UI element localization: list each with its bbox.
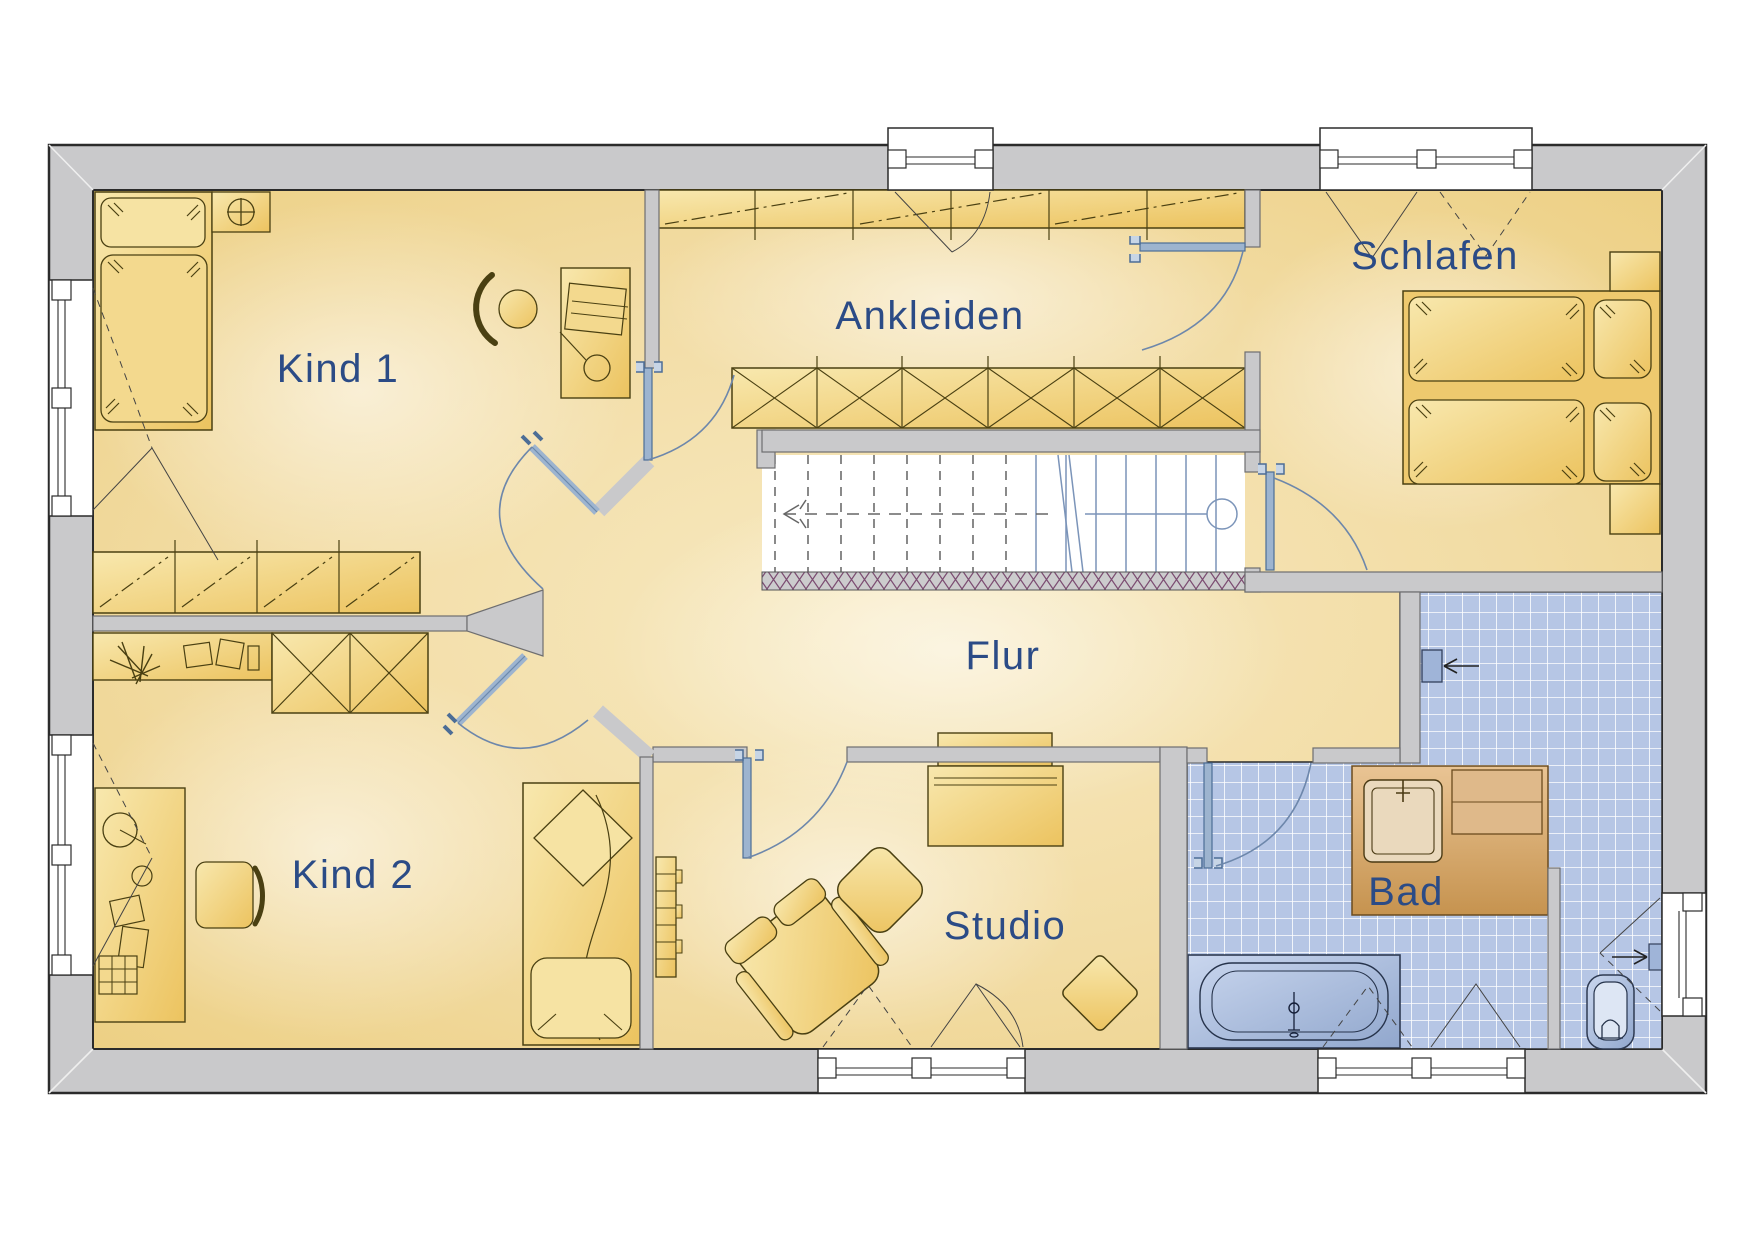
bathtub: [1188, 955, 1400, 1048]
bed-pillow: [1594, 403, 1651, 481]
desk-keyboard: [565, 283, 626, 335]
wall-flur-studio-left: [653, 747, 747, 762]
wall-kind2-studio: [640, 757, 653, 1049]
keyboard-kind2: [99, 956, 137, 994]
label-kind2: Kind 2: [292, 853, 414, 897]
chair-kind2: [196, 862, 253, 928]
stair-railing: [762, 572, 1245, 590]
wall-flur-bad-1: [1187, 748, 1207, 763]
wall-flur-studio-right: [847, 747, 1160, 762]
nightstand: [1610, 484, 1660, 534]
wall-flur-schlafen-top: [1245, 452, 1260, 472]
towel-radiator-small: [1649, 944, 1662, 970]
wall-kind1-ankleiden: [645, 190, 659, 368]
bed-mattress: [101, 255, 207, 422]
wall-flur-bad-2: [1313, 748, 1400, 763]
toilet: [1587, 975, 1634, 1049]
wall-ankleiden-schlafen-top: [1245, 190, 1260, 247]
wall-kind1-kind2: [93, 616, 467, 631]
label-schlafen: Schlafen: [1351, 234, 1519, 278]
sideboard-kind2: [93, 633, 272, 680]
floor-plan-drawing: Kind 1 Ankleiden Schlafen Flur Kind 2 St…: [0, 0, 1754, 1240]
bed-pillow: [531, 958, 631, 1038]
wall-studio-bad: [1160, 747, 1187, 1049]
wall-flur-bad-west: [1400, 592, 1420, 763]
label-studio: Studio: [944, 904, 1066, 948]
wall-schlafen-south: [1245, 572, 1662, 592]
staircase: [762, 455, 1245, 590]
towel-radiator: [1422, 650, 1442, 682]
label-kind1: Kind 1: [277, 347, 399, 391]
bed-pillow: [1594, 300, 1651, 378]
label-bad: Bad: [1368, 870, 1444, 914]
floor-plan-page: Kind 1 Ankleiden Schlafen Flur Kind 2 St…: [0, 0, 1754, 1240]
office-chair-seat: [499, 290, 537, 328]
nightstand: [1610, 252, 1660, 291]
wall-stair-north: [762, 430, 1260, 452]
label-flur: Flur: [966, 634, 1041, 678]
label-ankleiden: Ankleiden: [835, 294, 1024, 338]
bed-mattress: [1409, 297, 1584, 381]
wall-toilet-partition: [1548, 868, 1560, 1049]
bed-mattress: [1409, 400, 1584, 484]
